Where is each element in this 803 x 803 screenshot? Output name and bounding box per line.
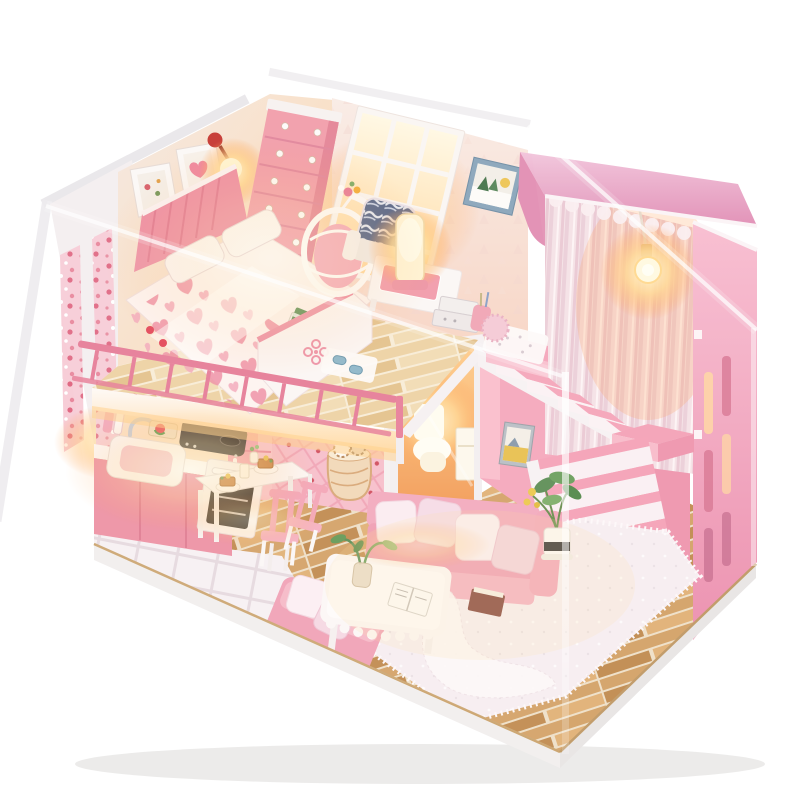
acrylic-right-edge — [751, 328, 756, 566]
acrylic-front-corner — [562, 372, 569, 754]
dollhouse-product-photo — [0, 0, 803, 803]
ground-shadow — [75, 744, 765, 784]
dollhouse-scene — [0, 0, 803, 803]
acrylic-edge-left — [0, 199, 52, 522]
picture-frame-winter — [463, 157, 523, 215]
